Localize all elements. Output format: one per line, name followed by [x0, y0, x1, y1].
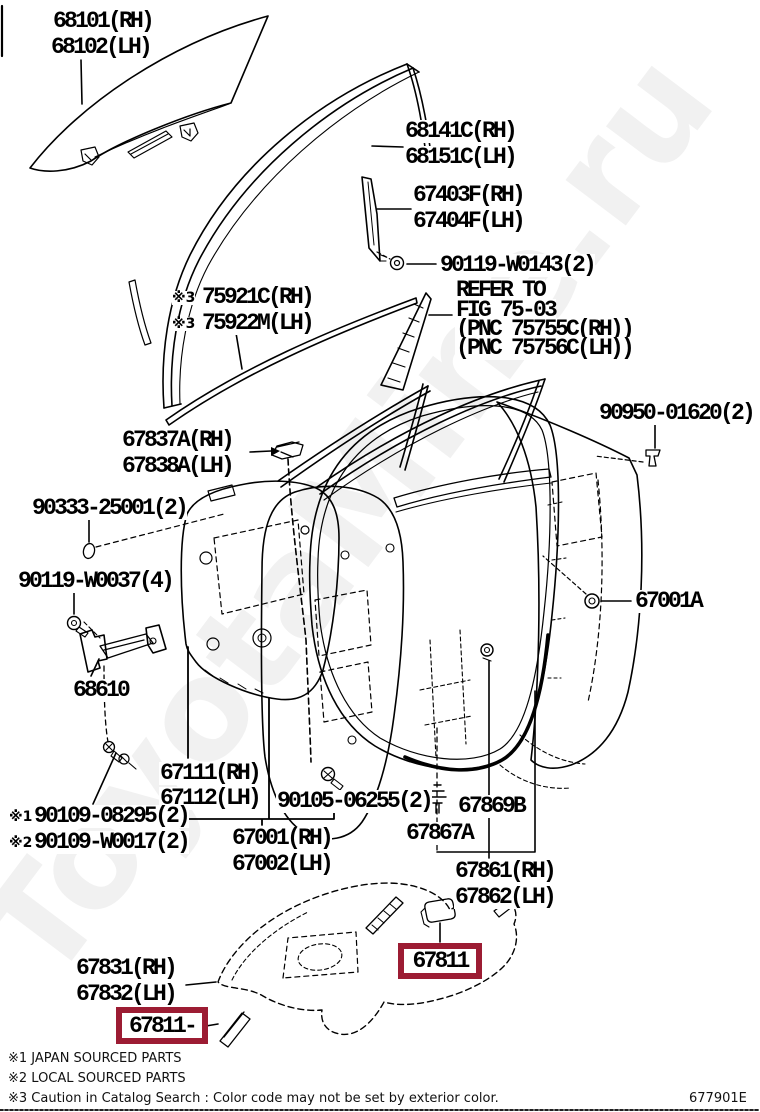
label-cushion: 67869B: [457, 795, 525, 818]
label-door-panel-lh: 67002(LH): [231, 853, 332, 876]
label-panel-bolt: 67001A: [634, 590, 702, 613]
highlight-box-pad-left[interactable]: 67811-: [116, 1007, 208, 1044]
label-front-sash-rh: 67403F(RH): [412, 184, 524, 207]
label-tape-lh: 75922M(LH): [201, 312, 313, 335]
highlight-box-pad-right[interactable]: 67811: [398, 943, 482, 979]
footer-note-japan: ※1 JAPAN SOURCED PARTS: [8, 1051, 182, 1066]
label-weatherstrip-lh: 67862(LH): [454, 886, 555, 909]
label-glass-run-lh: 68151C(LH): [404, 146, 516, 169]
label-sash-screw: 90119-W0143(2): [439, 254, 595, 277]
label-door-glass-rh: 68101(RH): [52, 10, 153, 33]
label-door-glass-lh: 68102(LH): [50, 36, 151, 59]
label-front-sash-lh: 67404F(LH): [412, 210, 524, 233]
label-tape-rh: 75921C(RH): [201, 286, 313, 309]
parts-diagram-page: ToyotaMine.ru: [0, 0, 760, 1112]
figure-code: 677901E: [689, 1091, 747, 1106]
label-check-screw-prefix2: ※2: [9, 836, 32, 850]
label-check-screw-no2: 90109-W0017(2): [33, 831, 189, 854]
label-grommet: 90950-01620(2): [598, 402, 754, 425]
footer-note-local: ※2 LOCAL SOURCED PARTS: [8, 1071, 186, 1086]
label-door-panel-rh: 67001(RH): [231, 827, 332, 850]
label-glass-run-rh: 68141C(RH): [404, 120, 516, 143]
label-frame-clip-rh: 67837A(RH): [121, 429, 233, 452]
label-service-cover-rh: 67831(RH): [75, 957, 176, 980]
label-refer-line4: (PNC 75756C(LH)): [455, 337, 633, 360]
label-panel-screw: 90105-06255(2): [276, 790, 432, 813]
label-check-bolt: 90119-W0037(4): [17, 570, 173, 593]
label-tape-prefix-rh: ※3: [172, 291, 195, 305]
label-frame-clip-lh: 67838A(LH): [121, 455, 233, 478]
label-check-screw-no1: 90109-08295(2): [33, 805, 189, 828]
footer-note-caution: ※3 Caution in Catalog Search : Color cod…: [8, 1091, 499, 1106]
label-gasket: 90333-25001(2): [31, 497, 187, 520]
label-tape-prefix-lh: ※3: [172, 317, 195, 331]
label-inner-panel-rh: 67111(RH): [159, 762, 260, 785]
label-door-check: 68610: [72, 679, 129, 702]
label-service-cover-lh: 67832(LH): [75, 983, 176, 1006]
label-check-screw-prefix1: ※1: [9, 810, 32, 824]
diagram-line-art: ToyotaMine.ru: [0, 0, 760, 1112]
label-trim-clip: 67867A: [405, 822, 473, 845]
label-weatherstrip-rh: 67861(RH): [454, 860, 555, 883]
